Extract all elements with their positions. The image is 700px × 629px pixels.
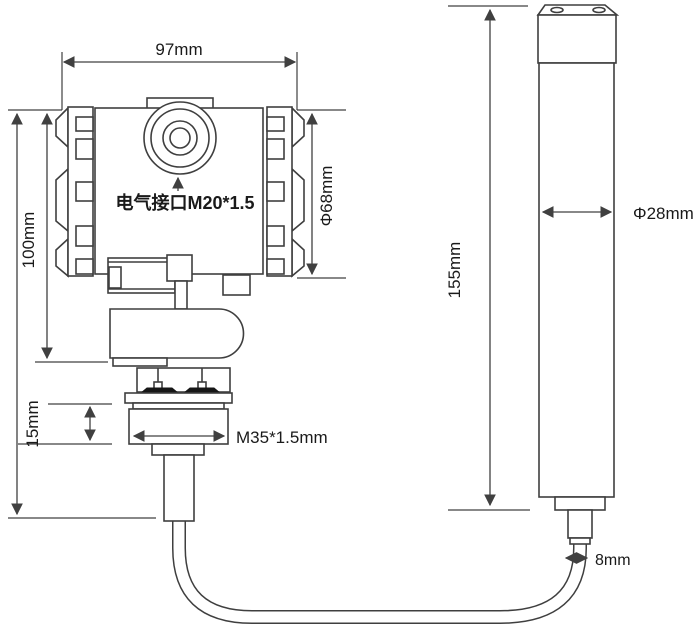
sensor-probe bbox=[538, 5, 617, 544]
probe-tip bbox=[570, 538, 590, 544]
probe-cap bbox=[538, 15, 616, 63]
dim-thread-height: 15mm bbox=[18, 400, 112, 447]
process-body bbox=[110, 309, 243, 358]
terminal-block bbox=[108, 258, 175, 293]
neck-post bbox=[175, 281, 187, 309]
dim-label-cable-diameter: 8mm bbox=[595, 552, 631, 569]
transmitter-assembly bbox=[56, 98, 304, 455]
dim-label-top-width: 97mm bbox=[155, 40, 202, 59]
label-electrical-port: 电气接口M20*1.5 bbox=[115, 192, 254, 213]
side-step-block bbox=[223, 275, 250, 295]
probe-step bbox=[555, 497, 605, 510]
bolt-clamp bbox=[137, 368, 230, 393]
dim-label-body-diameter: Φ68mm bbox=[317, 166, 336, 227]
dim-label-probe-diameter: Φ28mm bbox=[633, 204, 694, 223]
process-body-strip bbox=[113, 358, 167, 366]
right-end-cap bbox=[267, 107, 304, 276]
connecting-cable bbox=[179, 521, 580, 617]
flange-plate bbox=[133, 403, 224, 409]
probe-body bbox=[539, 63, 614, 497]
electrical-gland-circles bbox=[144, 102, 216, 174]
thread-nut bbox=[129, 409, 228, 444]
drawing-canvas: 97mm 100mm 15mm Φ68mm 155mm Φ28mm M3 bbox=[0, 0, 700, 629]
cable-entry-tube bbox=[164, 455, 194, 521]
dim-label-thread-spec: M35*1.5mm bbox=[236, 428, 328, 447]
junction-block bbox=[167, 255, 192, 281]
dim-probe-length: 155mm bbox=[445, 6, 530, 510]
dim-label-thread-height: 15mm bbox=[23, 400, 42, 447]
collar bbox=[152, 444, 204, 455]
left-end-cap bbox=[56, 107, 93, 276]
mount-flange bbox=[125, 393, 232, 403]
dim-label-body-height: 100mm bbox=[19, 212, 38, 269]
dimension-drawing: 97mm 100mm 15mm Φ68mm 155mm Φ28mm M3 bbox=[0, 0, 700, 629]
dim-label-probe-length: 155mm bbox=[445, 242, 464, 299]
probe-nozzle bbox=[568, 510, 592, 538]
